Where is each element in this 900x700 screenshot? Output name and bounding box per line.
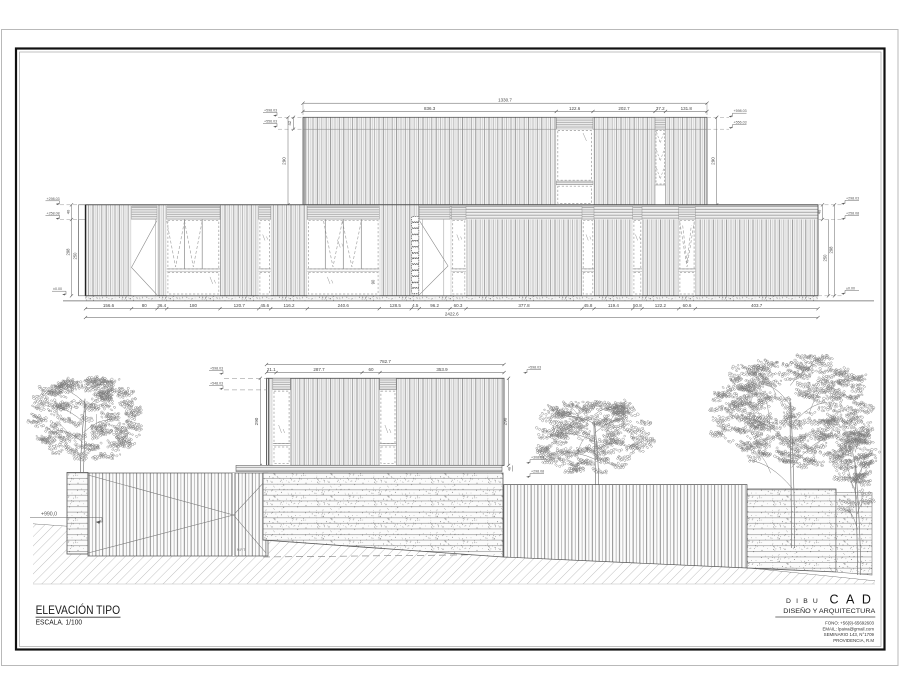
svg-text:128.5: 128.5 (390, 303, 402, 308)
svg-text:180: 180 (190, 303, 198, 308)
svg-text:+298.03: +298.03 (846, 196, 859, 200)
svg-text:+298.08: +298.08 (531, 470, 544, 474)
svg-text:119.4: 119.4 (608, 303, 619, 308)
svg-text:131.8: 131.8 (681, 106, 693, 111)
svg-text:40: 40 (816, 209, 821, 214)
svg-text:ELEVACIÓN TIPO: ELEVACIÓN TIPO (36, 604, 121, 617)
svg-text:FONO: +56(9)-65692603: FONO: +56(9)-65692603 (825, 621, 874, 626)
svg-text:SEMINARIO 143, N°1709: SEMINARIO 143, N°1709 (824, 632, 875, 637)
svg-text:836.3: 836.3 (424, 106, 436, 111)
svg-text:+258.08: +258.08 (846, 212, 859, 216)
svg-text:+308.03: +308.03 (531, 456, 544, 460)
svg-text:+598.03: +598.03 (210, 367, 223, 371)
svg-text:EMAIL: lpaiva@gmail.com: EMAIL: lpaiva@gmail.com (822, 626, 874, 631)
svg-text:60: 60 (368, 367, 374, 372)
svg-text:96.2: 96.2 (430, 303, 439, 308)
svg-text:36.4: 36.4 (157, 303, 166, 308)
svg-text:60.6: 60.6 (683, 303, 692, 308)
svg-text:+298.03: +298.03 (47, 197, 60, 201)
svg-text:DIBU: DIBU (786, 598, 823, 605)
svg-text:240.6: 240.6 (338, 303, 350, 308)
svg-text:4.5: 4.5 (412, 303, 419, 308)
svg-text:ESCALA. 1/100: ESCALA. 1/100 (36, 619, 83, 626)
svg-text:+548.03: +548.03 (210, 382, 223, 386)
svg-text:1330.7: 1330.7 (498, 98, 512, 103)
svg-text:120.7: 120.7 (234, 303, 246, 308)
svg-text:37.2: 37.2 (656, 106, 665, 111)
svg-text:377.8: 377.8 (518, 303, 530, 308)
svg-text:48: 48 (507, 467, 511, 471)
svg-text:782.7: 782.7 (380, 359, 392, 364)
svg-text:116.2: 116.2 (284, 303, 295, 308)
svg-text:80: 80 (142, 303, 148, 308)
svg-text:N.P.T: N.P.T (237, 548, 245, 552)
svg-text:353.9: 353.9 (436, 367, 448, 372)
svg-text:156.6: 156.6 (103, 303, 115, 308)
svg-text:CAD: CAD (830, 593, 879, 607)
svg-text:290: 290 (282, 157, 287, 165)
svg-text:287.7: 287.7 (313, 367, 325, 372)
svg-text:298: 298 (828, 246, 833, 254)
svg-text:+598.03: +598.03 (528, 366, 541, 370)
svg-text:±0.00: ±0.00 (846, 286, 855, 290)
svg-text:PROVIDENCIA, R.M: PROVIDENCIA, R.M (833, 638, 874, 643)
svg-text:+556.03: +556.03 (264, 119, 277, 123)
svg-text:90: 90 (370, 279, 375, 284)
svg-text:50.8: 50.8 (633, 303, 642, 308)
svg-text:40: 40 (65, 209, 70, 214)
svg-text:298: 298 (65, 248, 70, 256)
svg-text:+598.03: +598.03 (734, 109, 747, 113)
svg-text:±0.00: ±0.00 (53, 287, 62, 291)
svg-text:+556.03: +556.03 (734, 121, 747, 125)
svg-text:45.6: 45.6 (260, 303, 269, 308)
svg-text:290: 290 (254, 417, 259, 425)
svg-text:DISEÑO Y ARQUITECTURA: DISEÑO Y ARQUITECTURA (783, 606, 876, 615)
svg-text:250: 250 (72, 252, 77, 260)
svg-text:122.2: 122.2 (655, 303, 667, 308)
svg-text:250: 250 (822, 254, 827, 262)
svg-text:+598.03: +598.03 (264, 108, 277, 112)
svg-text:403.7: 403.7 (751, 303, 763, 308)
svg-text:21.1: 21.1 (267, 367, 276, 372)
svg-text:290: 290 (502, 417, 507, 425)
svg-text:60.3: 60.3 (454, 303, 463, 308)
svg-text:+258.08: +258.08 (47, 211, 60, 215)
svg-text:45.8: 45.8 (584, 303, 593, 308)
svg-text:122.6: 122.6 (569, 106, 581, 111)
svg-text:+990,0: +990,0 (41, 512, 57, 518)
svg-text:290: 290 (710, 157, 715, 165)
svg-text:2422.6: 2422.6 (445, 312, 459, 317)
svg-text:202.7: 202.7 (618, 106, 630, 111)
